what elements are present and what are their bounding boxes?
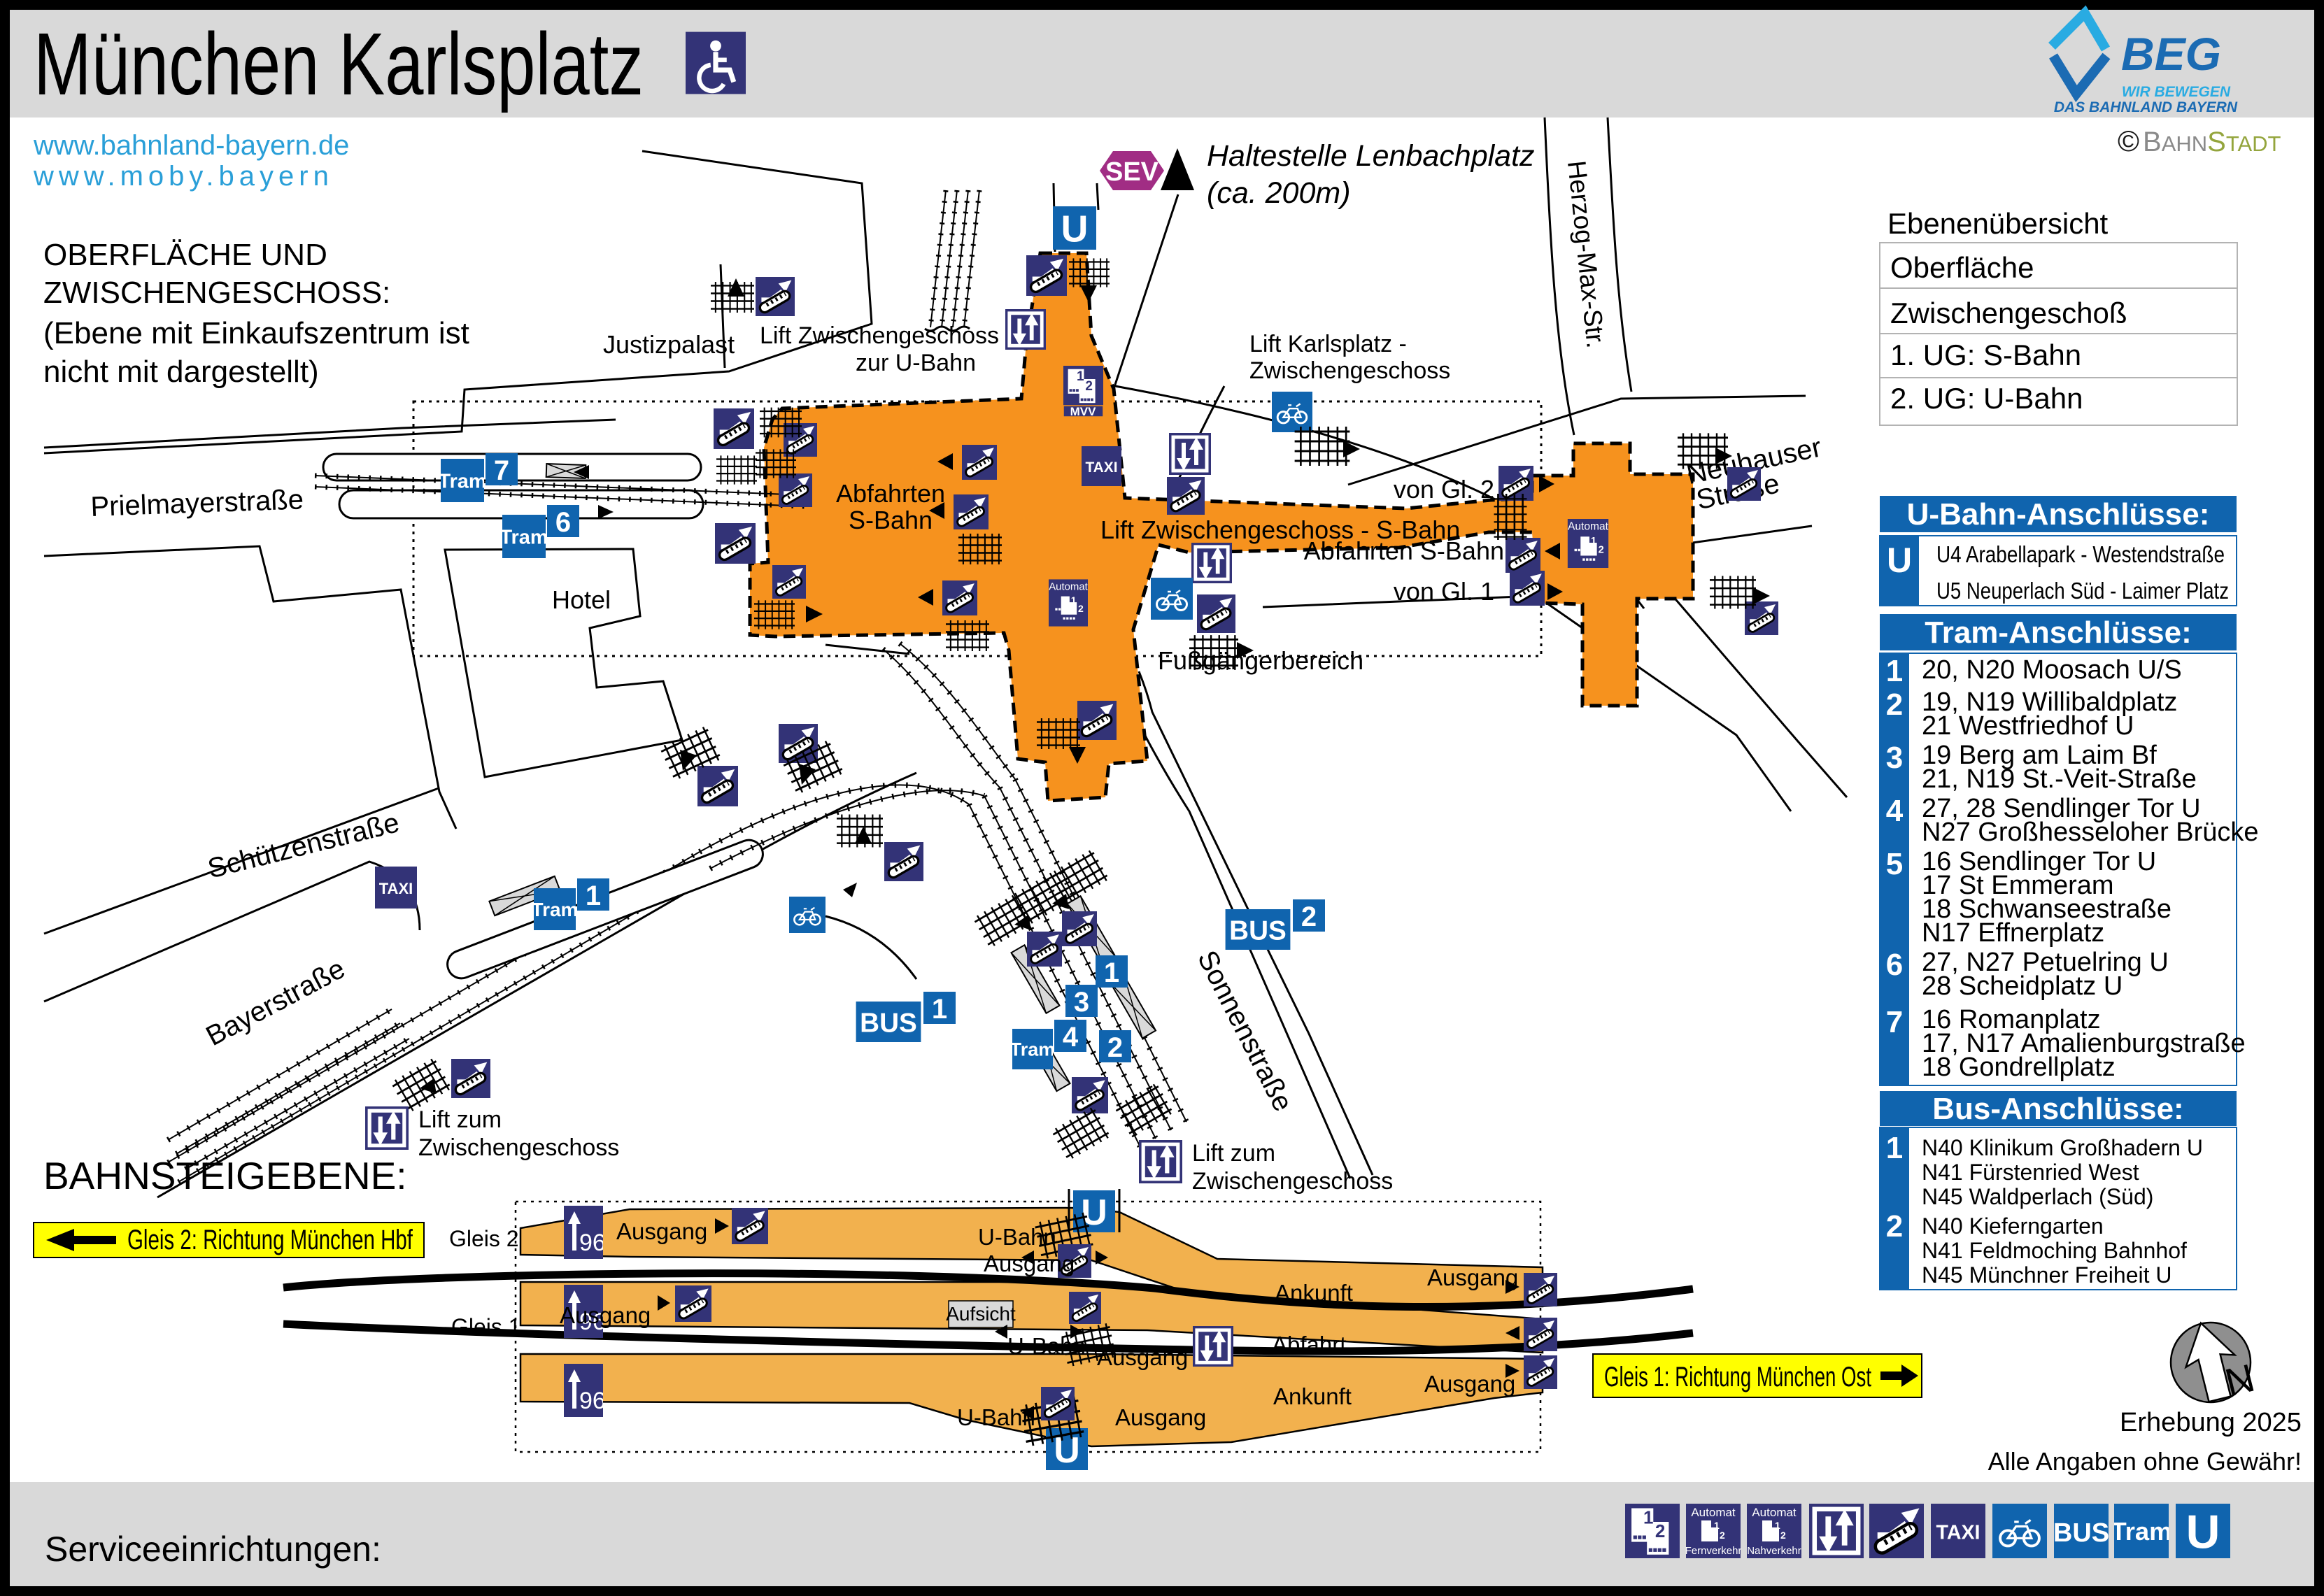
svg-text:Gleis 1: Richtung München Ost: Gleis 1: Richtung München Ost — [1604, 1362, 1871, 1392]
svg-text:DAS BAHNLAND BAYERN: DAS BAHNLAND BAYERN — [2054, 99, 2238, 115]
svg-text:4: 4 — [1063, 1022, 1079, 1053]
svg-text:Zwischengeschoss: Zwischengeschoss — [418, 1134, 619, 1161]
svg-text:Fernverkehr: Fernverkehr — [1685, 1545, 1742, 1557]
svg-text:1: 1 — [1886, 654, 1903, 688]
svg-text:(Ebene mit Einkaufszentrum ist: (Ebene mit Einkaufszentrum ist — [43, 316, 469, 350]
svg-text:U4 Arabellapark - Westendstraß: U4 Arabellapark - Westendstraße — [1936, 541, 2225, 567]
svg-text:Fußgängerbereich: Fußgängerbereich — [1158, 646, 1363, 675]
svg-text:2: 2 — [1780, 1530, 1786, 1541]
svg-text:OBERFLÄCHE UND: OBERFLÄCHE UND — [43, 238, 327, 272]
svg-text:N40 Kieferngarten: N40 Kieferngarten — [1922, 1213, 2104, 1239]
svg-text:4: 4 — [1886, 794, 1904, 828]
svg-text:Hotel: Hotel — [552, 585, 611, 614]
svg-text:Ebenenübersicht: Ebenenübersicht — [1887, 207, 2109, 240]
svg-text:Tram-Anschlüsse:: Tram-Anschlüsse: — [1925, 615, 2191, 650]
svg-text:2: 2 — [1107, 1032, 1123, 1063]
svg-text:N27 Großhesseloher Brücke: N27 Großhesseloher Brücke — [1922, 818, 2259, 847]
svg-text:Abfahrten S-Bahn: Abfahrten S-Bahn — [1304, 536, 1504, 565]
svg-text:Ausgang: Ausgang — [1115, 1404, 1206, 1430]
svg-text:3: 3 — [1074, 987, 1089, 1018]
svg-text:N17 Effnerplatz: N17 Effnerplatz — [1922, 918, 2104, 948]
svg-text:Lift zum: Lift zum — [1192, 1140, 1275, 1167]
svg-text:N41 Feldmoching Bahnhof: N41 Feldmoching Bahnhof — [1922, 1238, 2187, 1263]
svg-text:5: 5 — [1886, 847, 1903, 881]
svg-text:N41 Fürstenried West: N41 Fürstenried West — [1922, 1160, 2139, 1185]
svg-text:1. UG: S-Bahn: 1. UG: S-Bahn — [1890, 339, 2081, 371]
svg-text:zur U-Bahn: zur U-Bahn — [856, 350, 976, 376]
svg-text:2: 2 — [1301, 902, 1317, 932]
svg-text:von Gl. 1: von Gl. 1 — [1394, 577, 1494, 606]
svg-text:ZWISCHENGESCHOSS:: ZWISCHENGESCHOSS: — [43, 276, 390, 310]
svg-text:Abfahrt: Abfahrt — [1272, 1332, 1346, 1358]
svg-text:28 Scheidplatz U: 28 Scheidplatz U — [1922, 971, 2123, 1001]
svg-text:Gleis 2: Richtung München Hbf: Gleis 2: Richtung München Hbf — [127, 1225, 413, 1255]
svg-text:N40 Klinikum Großhadern U: N40 Klinikum Großhadern U — [1922, 1135, 2203, 1160]
svg-text:Ausgang: Ausgang — [1424, 1371, 1515, 1397]
svg-text:7: 7 — [494, 455, 509, 486]
svg-text:1: 1 — [1104, 957, 1119, 988]
svg-text:6: 6 — [555, 507, 571, 538]
svg-text:WIR BEWEGEN: WIR BEWEGEN — [2122, 84, 2231, 100]
svg-text:BAHNSTADT: BAHNSTADT — [2143, 127, 2281, 157]
svg-text:www.moby.bayern: www.moby.bayern — [33, 161, 334, 192]
svg-text:U-Bahn: U-Bahn — [1007, 1333, 1086, 1359]
svg-text:Ausgang: Ausgang — [1427, 1264, 1518, 1290]
svg-text:18 Gondrellplatz: 18 Gondrellplatz — [1922, 1053, 2116, 1082]
svg-text:Ausgang: Ausgang — [560, 1302, 651, 1328]
svg-text:Zwischengeschoß: Zwischengeschoß — [1890, 297, 2127, 329]
svg-text:Lift zum: Lift zum — [418, 1106, 502, 1133]
svg-text:1: 1 — [586, 881, 601, 911]
svg-text:Lift Zwischengeschoss: Lift Zwischengeschoss — [760, 322, 999, 349]
svg-text:Erhebung 2025: Erhebung 2025 — [2120, 1408, 2302, 1437]
svg-text:MVV: MVV — [1070, 405, 1097, 418]
svg-text:©: © — [2118, 124, 2139, 157]
svg-text:Zwischengeschoss: Zwischengeschoss — [1192, 1168, 1393, 1195]
svg-text:N45 Waldperlach (Süd): N45 Waldperlach (Süd) — [1922, 1184, 2153, 1209]
svg-text:Abfahrten: Abfahrten — [836, 479, 945, 508]
svg-text:N45 Münchner Freiheit U: N45 Münchner Freiheit U — [1922, 1262, 2171, 1288]
svg-text:U-Bahn-Anschlüsse:: U-Bahn-Anschlüsse: — [1907, 497, 2210, 532]
svg-text:3: 3 — [1886, 741, 1903, 775]
svg-text:Bus-Anschlüsse:: Bus-Anschlüsse: — [1932, 1092, 2183, 1126]
svg-text:(ca. 200m): (ca. 200m) — [1207, 176, 1351, 210]
svg-text:Ausgang: Ausgang — [984, 1251, 1075, 1276]
svg-text:www.bahnland-bayern.de: www.bahnland-bayern.de — [33, 130, 349, 161]
svg-text:Justizpalast: Justizpalast — [603, 330, 735, 359]
svg-text:Ausgang: Ausgang — [1097, 1344, 1188, 1370]
svg-text:2: 2 — [1720, 1530, 1725, 1541]
svg-text:2: 2 — [1886, 1209, 1903, 1244]
svg-text:Ausgang: Ausgang — [616, 1218, 707, 1244]
svg-text:SEV: SEV — [1105, 157, 1159, 187]
svg-text:Nahverkehr: Nahverkehr — [1747, 1545, 1801, 1557]
svg-text:S-Bahn: S-Bahn — [849, 506, 933, 534]
svg-text:Haltestelle Lenbachplatz: Haltestelle Lenbachplatz — [1207, 139, 1535, 173]
svg-text:U: U — [1887, 541, 1912, 580]
svg-text:Automat: Automat — [1752, 1506, 1797, 1519]
svg-text:Aufsicht: Aufsicht — [946, 1303, 1016, 1325]
svg-text:2: 2 — [1886, 687, 1903, 722]
svg-text:Automat: Automat — [1691, 1506, 1736, 1519]
svg-text:BUS: BUS — [2053, 1518, 2109, 1548]
svg-text:2. UG: U-Bahn: 2. UG: U-Bahn — [1890, 382, 2083, 415]
svg-text:BEG: BEG — [2121, 28, 2221, 80]
svg-text:6: 6 — [1886, 948, 1903, 982]
svg-text:21 Westfriedhof U: 21 Westfriedhof U — [1922, 711, 2134, 741]
svg-text:1: 1 — [1886, 1131, 1903, 1165]
svg-text:Gleis 2: Gleis 2 — [449, 1226, 519, 1251]
svg-text:Ankunft: Ankunft — [1273, 1383, 1352, 1409]
svg-text:1: 1 — [1714, 1520, 1720, 1531]
svg-text:Ankunft: Ankunft — [1275, 1280, 1353, 1306]
svg-text:nicht mit dargestellt): nicht mit dargestellt) — [43, 355, 319, 389]
svg-text:U5 Neuperlach Süd - Laimer Pla: U5 Neuperlach Süd - Laimer Platz — [1936, 578, 2229, 604]
svg-text:7: 7 — [1886, 1005, 1903, 1039]
svg-text:Serviceeinrichtungen:: Serviceeinrichtungen: — [45, 1530, 381, 1569]
svg-text:Alle Angaben ohne Gewähr!: Alle Angaben ohne Gewähr! — [1988, 1447, 2302, 1476]
svg-text:Oberfläche: Oberfläche — [1890, 251, 2034, 284]
svg-text:Lift Karlsplatz -: Lift Karlsplatz - — [1249, 331, 1407, 357]
svg-text:München Karlsplatz: München Karlsplatz — [34, 15, 644, 113]
svg-text:U-Bahn: U-Bahn — [957, 1404, 1035, 1430]
svg-text:20, N20 Moosach U/S: 20, N20 Moosach U/S — [1922, 655, 2182, 685]
svg-text:1: 1 — [932, 994, 947, 1025]
svg-text:1: 1 — [1775, 1520, 1780, 1531]
svg-text:Zwischengeschoss: Zwischengeschoss — [1249, 357, 1450, 384]
svg-text:BAHNSTEIGEBENE:: BAHNSTEIGEBENE: — [43, 1154, 407, 1197]
svg-text:21, N19 St.-Veit-Straße: 21, N19 St.-Veit-Straße — [1922, 764, 2197, 794]
svg-text:von Gl. 2: von Gl. 2 — [1394, 475, 1494, 504]
